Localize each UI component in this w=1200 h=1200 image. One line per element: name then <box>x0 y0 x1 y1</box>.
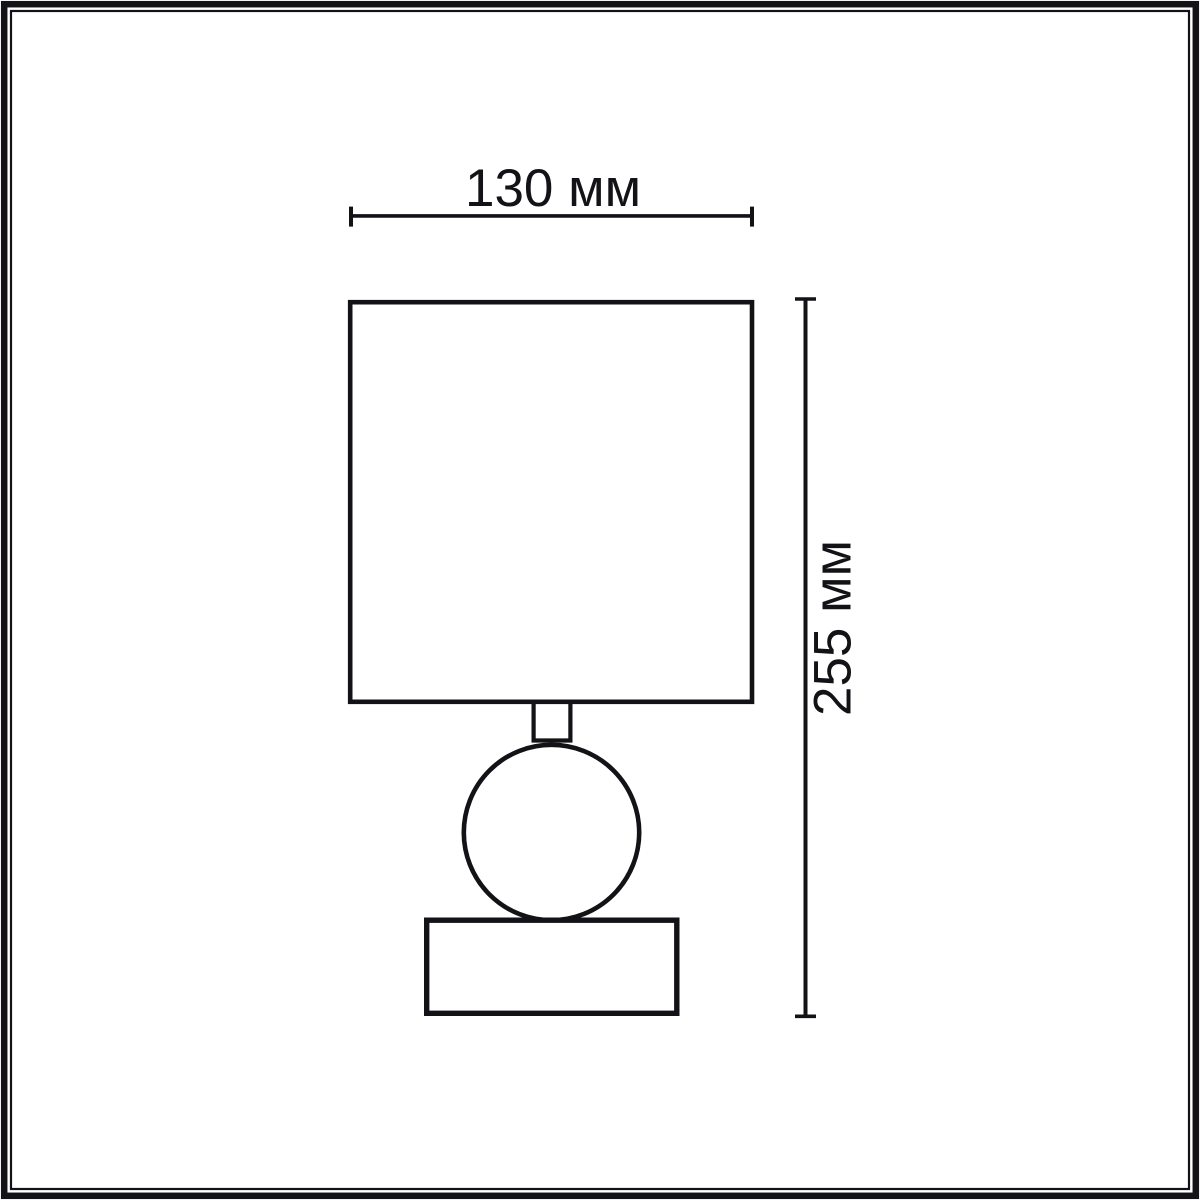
svg-text:130 мм: 130 мм <box>465 159 641 218</box>
svg-text:255 мм: 255 мм <box>804 540 863 716</box>
